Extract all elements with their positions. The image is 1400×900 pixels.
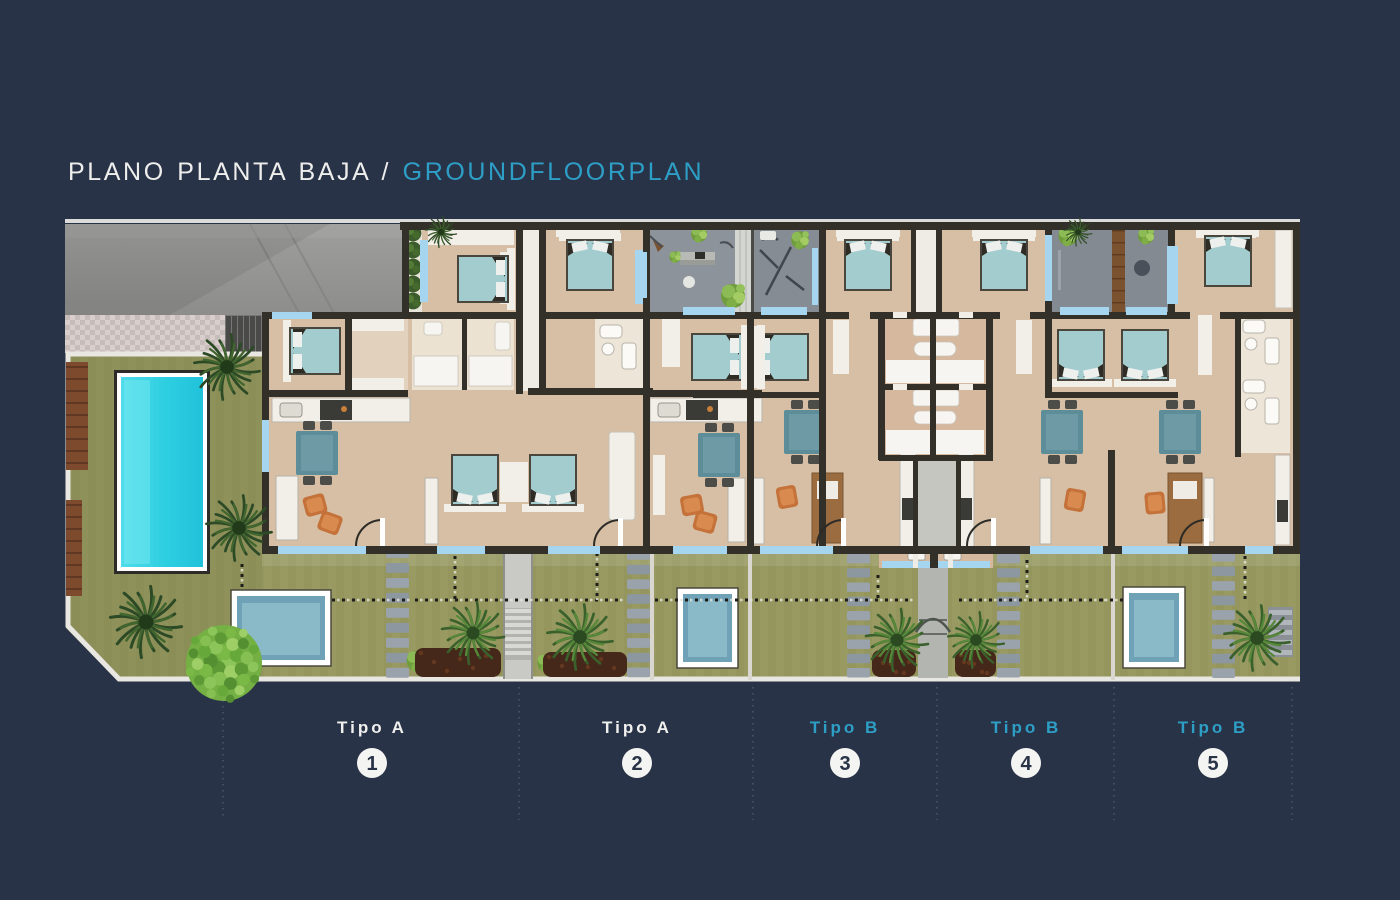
svg-text:Tipo B: Tipo B — [991, 718, 1062, 737]
svg-text:Tipo A: Tipo A — [337, 718, 407, 737]
svg-text:1: 1 — [366, 753, 377, 775]
svg-text:Tipo B: Tipo B — [810, 718, 881, 737]
svg-text:PLANO PLANTA BAJA / GROUNDFLO: PLANO PLANTA BAJA / GROUNDFLOORPLAN — [68, 158, 704, 186]
svg-text:4: 4 — [1020, 753, 1032, 775]
svg-text:5: 5 — [1207, 753, 1218, 775]
svg-text:3: 3 — [839, 753, 850, 775]
svg-text:Tipo B: Tipo B — [1178, 718, 1249, 737]
svg-text:2: 2 — [631, 753, 642, 775]
svg-text:Tipo A: Tipo A — [602, 718, 672, 737]
